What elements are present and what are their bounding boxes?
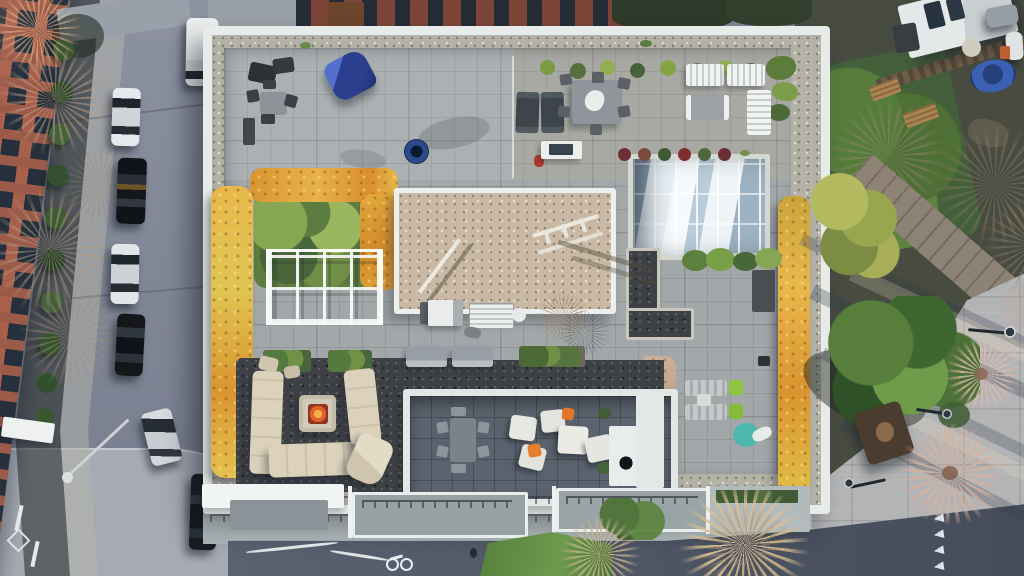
tree-pink-core	[974, 368, 988, 380]
dark-speaker-box	[758, 356, 770, 366]
dining-chair	[559, 73, 572, 86]
round-planter-blue	[404, 139, 429, 164]
fire-pit-flames	[308, 404, 328, 424]
dark-planter	[752, 270, 775, 312]
white-slat-lounger	[747, 90, 771, 135]
roof-weed	[740, 150, 750, 156]
parked-car-black	[114, 313, 145, 376]
shed	[328, 2, 364, 26]
parked-car-white	[111, 88, 141, 147]
plant-pot-row	[678, 148, 691, 161]
ac-unit	[428, 300, 463, 326]
lamp-head	[1004, 326, 1016, 338]
potted-shrub	[660, 60, 676, 76]
courtyard-chair	[451, 464, 466, 473]
courtyard-chair	[477, 421, 490, 434]
roof-weed	[640, 40, 652, 47]
dining-chair	[557, 105, 570, 117]
potted-shrub	[630, 63, 645, 78]
planter-greens	[682, 250, 709, 271]
pergola	[266, 249, 383, 325]
courtyard-chair	[436, 445, 449, 458]
planter-greens	[706, 248, 735, 271]
lounge-chair-white	[508, 414, 537, 441]
courtyard-plant	[598, 408, 611, 419]
tree-pink-core	[942, 466, 958, 480]
roof-weed	[300, 42, 311, 49]
patio-furniture-dark	[272, 57, 295, 75]
round-grill	[617, 454, 635, 472]
corner-plant	[768, 104, 790, 121]
bare-tree	[20, 280, 124, 392]
white-slat-bench	[686, 64, 724, 86]
facade-divider	[348, 486, 352, 538]
plant-pot-row	[638, 148, 651, 161]
dining-chair	[590, 124, 602, 135]
stairwell-skylight	[628, 154, 770, 260]
balcony	[352, 492, 528, 538]
planter-greens	[755, 248, 782, 269]
right-lounger	[685, 404, 727, 420]
sun-lounger-gray	[515, 92, 539, 134]
orange-pouf	[527, 443, 542, 458]
top-trees	[726, 0, 812, 26]
white-slat-bench	[727, 64, 765, 86]
plant-pot-row	[718, 148, 731, 161]
plant-pot-row	[618, 148, 631, 161]
plant-pot-row	[698, 148, 711, 161]
potted-shrub	[570, 63, 586, 79]
patio-bench	[243, 118, 255, 145]
dining-chair	[592, 72, 604, 83]
daybed-gray	[686, 95, 729, 120]
tree-yellow-green	[806, 168, 902, 280]
side-table	[697, 394, 711, 406]
patio-chair	[246, 89, 260, 103]
lime-cushion	[729, 404, 743, 419]
bike-lane-wheel	[400, 558, 413, 571]
patio-chair	[263, 80, 276, 89]
streetlight-base	[62, 472, 73, 483]
small-round-table	[512, 308, 526, 322]
courtyard-chair	[477, 445, 490, 458]
balcony-inset	[230, 500, 328, 530]
tree-trunk	[876, 422, 894, 442]
house-shadow-side	[892, 22, 920, 54]
orange-pouf	[561, 407, 575, 421]
lamp-head	[942, 409, 952, 419]
gravel-bed	[626, 308, 694, 340]
aerial-rooftop-scene	[0, 0, 1024, 576]
planter-greens	[733, 252, 758, 271]
orange-bin	[1000, 46, 1010, 59]
courtyard-end-wall	[636, 392, 664, 488]
parked-car-white	[110, 244, 139, 304]
cushion-bench	[452, 346, 493, 367]
lamp-head	[844, 478, 854, 488]
counter-sink	[549, 144, 573, 155]
balcony-posts	[362, 502, 512, 508]
ribbed-unit	[469, 303, 514, 329]
patio-chair	[261, 114, 275, 124]
courtyard-chair	[451, 407, 466, 416]
pedestrian	[470, 548, 477, 558]
cushion-bench	[406, 346, 447, 367]
parked-car-black	[116, 158, 147, 225]
dining-chair	[617, 105, 631, 118]
courtyard-chair	[436, 421, 449, 434]
planter-box	[519, 346, 585, 367]
dining-chair	[617, 77, 631, 90]
courtyard-table	[450, 418, 476, 462]
corner-plant	[772, 82, 798, 101]
potted-shrub	[540, 60, 555, 75]
lime-cushion	[729, 380, 743, 395]
facade-divider	[552, 486, 556, 536]
plant-pot-row	[658, 148, 671, 161]
patio-table-circle	[962, 38, 981, 57]
glass-divider	[512, 56, 514, 178]
